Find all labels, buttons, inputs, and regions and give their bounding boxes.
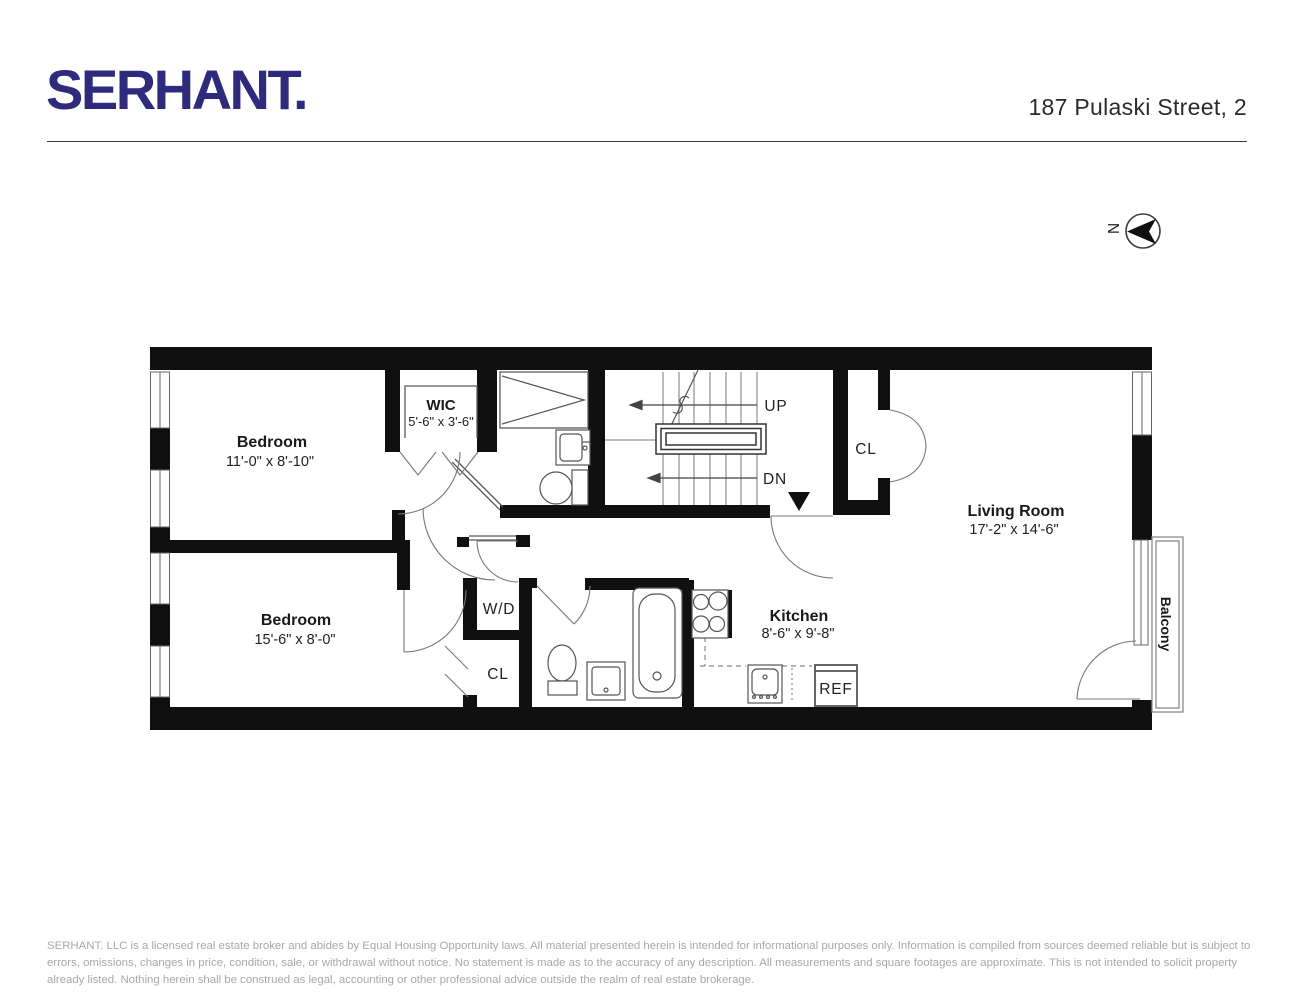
compass: N xyxy=(1106,214,1160,248)
refrigerator-label: REF xyxy=(819,681,852,698)
bathtub xyxy=(633,588,682,698)
balcony-door-arc xyxy=(1077,641,1140,699)
doors xyxy=(398,410,1140,699)
bedroom2-name: Bedroom xyxy=(261,612,331,629)
floorplan-page: SERHANT. 187 Pulaski Street, 2 N xyxy=(0,0,1294,1000)
cased-opening xyxy=(469,536,516,540)
window xyxy=(151,372,170,428)
bedroom1-name: Bedroom xyxy=(237,434,307,451)
stairs-up-label: UP xyxy=(764,398,787,415)
toilet xyxy=(548,645,577,695)
entry-marker xyxy=(788,492,810,511)
linen-closet-outline xyxy=(500,372,588,428)
window xyxy=(151,470,170,527)
kitchen-name: Kitchen xyxy=(770,608,829,625)
window xyxy=(1133,372,1152,435)
kitchen-sink xyxy=(748,665,782,703)
wic-name: WIC xyxy=(426,397,455,414)
fixtures xyxy=(540,430,857,706)
floor-plan-drawing: N xyxy=(0,0,1294,1000)
bifold-door xyxy=(400,452,478,475)
window xyxy=(151,646,170,697)
entry-door-arc xyxy=(771,516,833,578)
lower-closet-label: CL xyxy=(487,666,508,683)
stove xyxy=(692,590,728,638)
window xyxy=(151,553,170,604)
living-room-name: Living Room xyxy=(968,503,1065,520)
hall-closet-label: CL xyxy=(855,441,876,458)
washer-dryer-label: W/D xyxy=(483,601,516,618)
bedroom2-dims: 15'-6" x 8'-0" xyxy=(254,632,335,648)
balcony-window xyxy=(1134,540,1148,645)
north-arrow-icon xyxy=(1127,219,1156,244)
wic-dims: 5'-6" x 3'-6" xyxy=(408,414,474,429)
stairs xyxy=(605,370,810,511)
sink xyxy=(556,430,590,465)
hall-diagonal-wall xyxy=(452,459,503,510)
stair-railing xyxy=(656,424,766,454)
stairs-down-label: DN xyxy=(763,471,787,488)
door-arc xyxy=(404,590,466,652)
bifold-door xyxy=(445,646,468,697)
legal-disclaimer: SERHANT. LLC is a licensed real estate b… xyxy=(47,938,1251,989)
toilet xyxy=(540,470,588,505)
bedroom1-dims: 11'-0" x 8'-10" xyxy=(226,454,314,470)
sink xyxy=(587,662,625,700)
door-arc xyxy=(537,586,590,624)
closet-shelving xyxy=(502,376,584,424)
living-room-dims: 17'-2" x 14'-6" xyxy=(969,522,1058,538)
kitchen-dims: 8'-6" x 9'-8" xyxy=(761,626,834,642)
door-arc xyxy=(477,541,518,582)
balcony-label: Balcony xyxy=(1158,597,1174,652)
compass-north-label: N xyxy=(1106,222,1123,234)
double-door xyxy=(890,410,926,482)
